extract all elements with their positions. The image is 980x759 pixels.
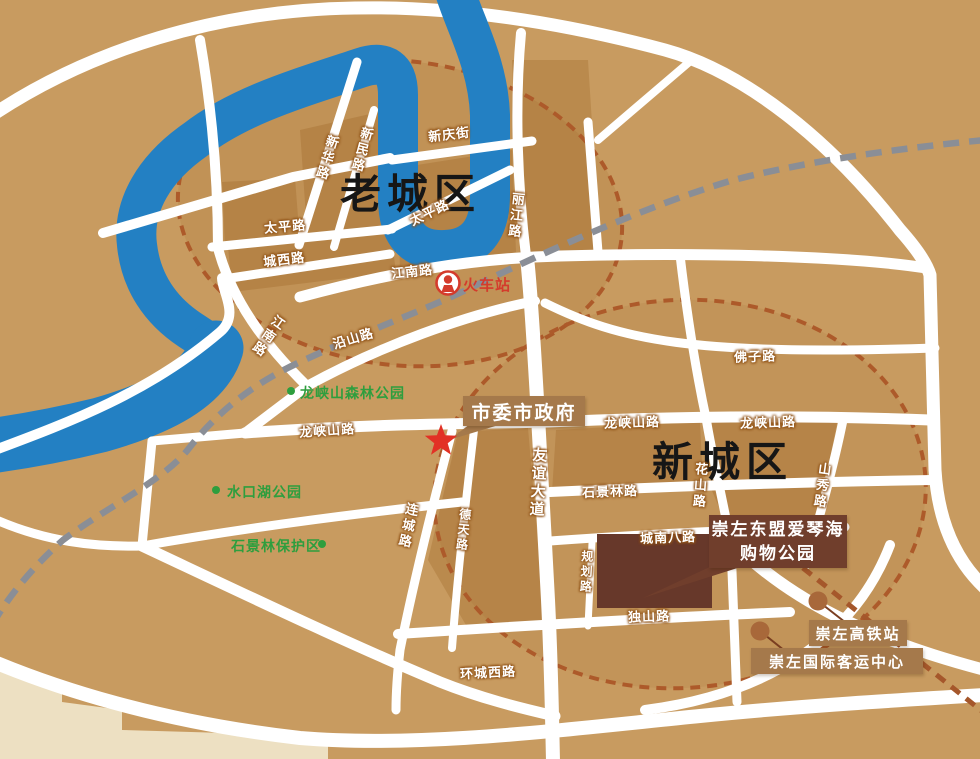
- shopping-park-footprint: [597, 534, 712, 608]
- hsr-station-callout: 崇左高铁站: [809, 620, 907, 646]
- road-guihua: [588, 543, 592, 626]
- shopping-park-callout: 崇左东盟爱琴海 购物公园: [709, 515, 847, 568]
- bus-center-dot: [751, 622, 770, 641]
- train-icon-head: [444, 275, 452, 283]
- shopping-park-label-line1: 崇左东盟爱琴海: [712, 518, 845, 542]
- bus-center-label: 崇左国际客运中心: [769, 651, 905, 672]
- shopping-park-label-line2: 购物公园: [740, 542, 816, 566]
- bus-center-callout: 崇左国际客运中心: [751, 648, 923, 674]
- government-label: 市委市政府: [471, 398, 576, 425]
- government-callout: 市委市政府: [463, 396, 585, 426]
- road-sw2: [142, 441, 152, 546]
- road-left-curve: [0, 518, 142, 546]
- city-map: 老城区 新城区 新华路 新民路 新庆街 太平路 太平路 城西路 丽江路 江南路 …: [0, 0, 980, 759]
- road-east-diag: [598, 58, 694, 140]
- hsr-station-dot: [809, 592, 828, 611]
- reserve-dot: [318, 540, 326, 548]
- forest-park-dot: [287, 387, 295, 395]
- road-sw1: [152, 433, 245, 441]
- lake-park-dot: [212, 486, 220, 494]
- hsr-station-label: 崇左高铁站: [815, 623, 900, 644]
- train-station-icon: [437, 272, 460, 295]
- road-l2: [142, 502, 462, 546]
